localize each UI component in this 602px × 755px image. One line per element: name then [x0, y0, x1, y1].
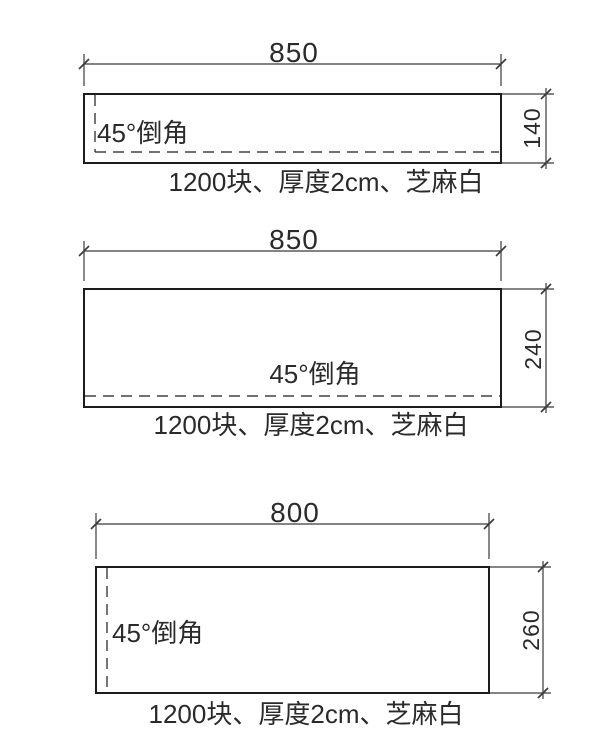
p2-chamfer-label: 45°倒角 [215, 361, 415, 388]
p2-width-dimension: 850 [194, 225, 394, 254]
p3-width-dimension: 800 [195, 498, 395, 527]
p2-height-dimension: 240 [521, 328, 545, 369]
panel-3-geometry [91, 513, 551, 699]
p1-caption: 1200块、厚度2cm、芝麻白 [116, 169, 536, 196]
stone-panel-drawing: 850 140 45°倒角 1200块、厚度2cm、芝麻白 850 240 45… [0, 0, 602, 755]
p3-height-dimension: 260 [519, 609, 543, 650]
p1-width-dimension: 850 [194, 38, 394, 67]
p1-height-dimension: 140 [520, 107, 544, 148]
p3-chamfer-label: 45°倒角 [112, 620, 203, 647]
p3-caption: 1200块、厚度2cm、芝麻白 [96, 701, 516, 728]
p1-chamfer-label: 45°倒角 [97, 120, 188, 147]
p2-outline [84, 289, 501, 407]
p2-caption: 1200块、厚度2cm、芝麻白 [101, 412, 521, 439]
panel-1-geometry [79, 54, 554, 169]
